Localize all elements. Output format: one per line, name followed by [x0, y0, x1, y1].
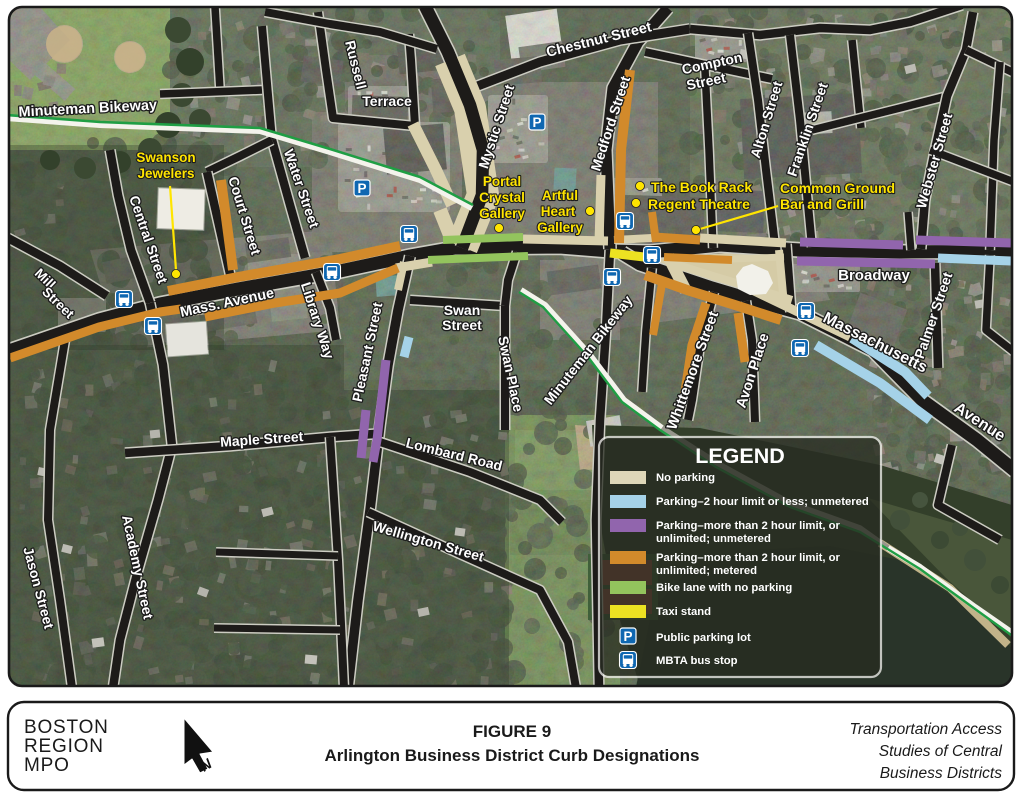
svg-text:LEGEND: LEGEND: [695, 444, 785, 468]
svg-text:REGION: REGION: [24, 736, 104, 757]
svg-text:Jewelers: Jewelers: [137, 166, 194, 181]
svg-text:BOSTON: BOSTON: [24, 717, 109, 738]
svg-text:Studies of Central: Studies of Central: [879, 743, 1003, 760]
svg-text:Swanson: Swanson: [136, 150, 195, 165]
svg-text:Bar and Grill: Bar and Grill: [780, 196, 864, 212]
svg-text:Common Ground: Common Ground: [780, 180, 895, 196]
svg-text:No parking: No parking: [656, 472, 715, 484]
svg-text:MBTA bus stop: MBTA bus stop: [656, 655, 738, 667]
svg-text:Bike lane with no parking: Bike lane with no parking: [656, 582, 792, 594]
svg-text:Heart: Heart: [541, 204, 576, 219]
svg-text:Business Districts: Business Districts: [880, 765, 1003, 782]
svg-text:Terrace: Terrace: [362, 93, 412, 109]
svg-text:Parking–more than 2 hour limit: Parking–more than 2 hour limit, or: [656, 520, 841, 532]
svg-text:unlimited; unmetered: unlimited; unmetered: [656, 533, 771, 545]
svg-text:Taxi stand: Taxi stand: [656, 606, 711, 618]
svg-text:Street: Street: [442, 317, 482, 333]
svg-text:Gallery: Gallery: [537, 220, 583, 235]
svg-text:Crystal: Crystal: [479, 190, 525, 205]
svg-text:Arlington Business District Cu: Arlington Business District Curb Designa…: [325, 746, 700, 765]
svg-text:Parking–2 hour limit or less;: Parking–2 hour limit or less; unmetered: [656, 496, 869, 508]
svg-text:Swan: Swan: [444, 302, 481, 318]
svg-text:Gallery: Gallery: [479, 206, 525, 221]
svg-text:Public parking lot: Public parking lot: [656, 632, 751, 644]
svg-text:Broadway: Broadway: [838, 267, 910, 284]
svg-text:Parking–more than 2 hour limit: Parking–more than 2 hour limit, or: [656, 552, 841, 564]
svg-text:The Book Rack: The Book Rack: [651, 179, 752, 195]
svg-text:Regent Theatre: Regent Theatre: [648, 196, 750, 212]
svg-text:Artful: Artful: [542, 188, 578, 203]
svg-text:FIGURE 9: FIGURE 9: [473, 722, 551, 741]
svg-text:unlimited; metered: unlimited; metered: [656, 565, 757, 577]
svg-text:Portal: Portal: [483, 174, 521, 189]
svg-text:Transportation Access: Transportation Access: [850, 721, 1003, 738]
svg-text:MPO: MPO: [24, 755, 70, 776]
